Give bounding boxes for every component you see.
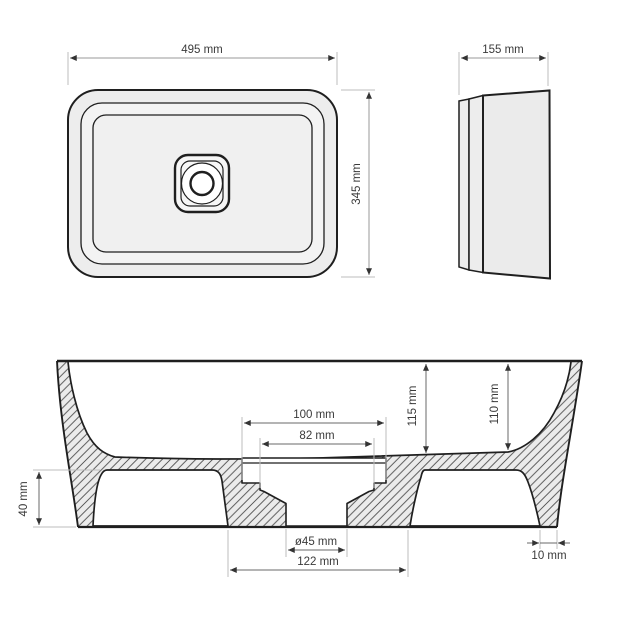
left-cavity xyxy=(93,470,228,526)
dim-label-bowl-depth-right: 110 mm xyxy=(489,384,501,425)
dim-label-bowl-depth-center: 115 mm xyxy=(407,386,419,427)
side-rim-strip-outer xyxy=(459,99,469,270)
dim-label-side-width: 155 mm xyxy=(482,44,524,56)
drawing-canvas: 495 mm 345 mm 155 mm xyxy=(0,0,630,630)
dim-label-overall-width: 495 mm xyxy=(181,44,223,56)
dim-wall-foot: 10 mm xyxy=(527,530,570,562)
dim-overall-width: 495 mm xyxy=(68,44,337,85)
dim-label-recess-inner-width: 82 mm xyxy=(299,430,334,442)
dim-label-base-width: 122 mm xyxy=(297,556,339,568)
dim-label-base-height: 40 mm xyxy=(18,481,30,516)
dim-label-drain-diameter: ø45 mm xyxy=(295,536,337,548)
drain-plan xyxy=(175,155,229,212)
section-view: 100 mm 82 mm 115 mm 110 mm 40 mm ø45 mm xyxy=(18,360,582,577)
dim-label-wall-foot: 10 mm xyxy=(531,550,566,562)
right-cavity xyxy=(410,470,540,526)
dim-side-width: 155 mm xyxy=(459,44,548,95)
side-rim-strip-inner xyxy=(469,96,483,273)
dim-label-overall-depth: 345 mm xyxy=(351,163,363,205)
top-view: 495 mm 345 mm xyxy=(68,44,375,277)
dim-label-recess-width: 100 mm xyxy=(293,409,335,421)
technical-drawing: 495 mm 345 mm 155 mm xyxy=(0,0,630,630)
dim-overall-depth: 345 mm xyxy=(341,90,375,277)
dim-drain-diameter: ø45 mm xyxy=(286,529,347,557)
drain-hole-circle xyxy=(191,172,214,195)
side-view: 155 mm xyxy=(459,44,550,279)
side-body xyxy=(483,91,550,279)
